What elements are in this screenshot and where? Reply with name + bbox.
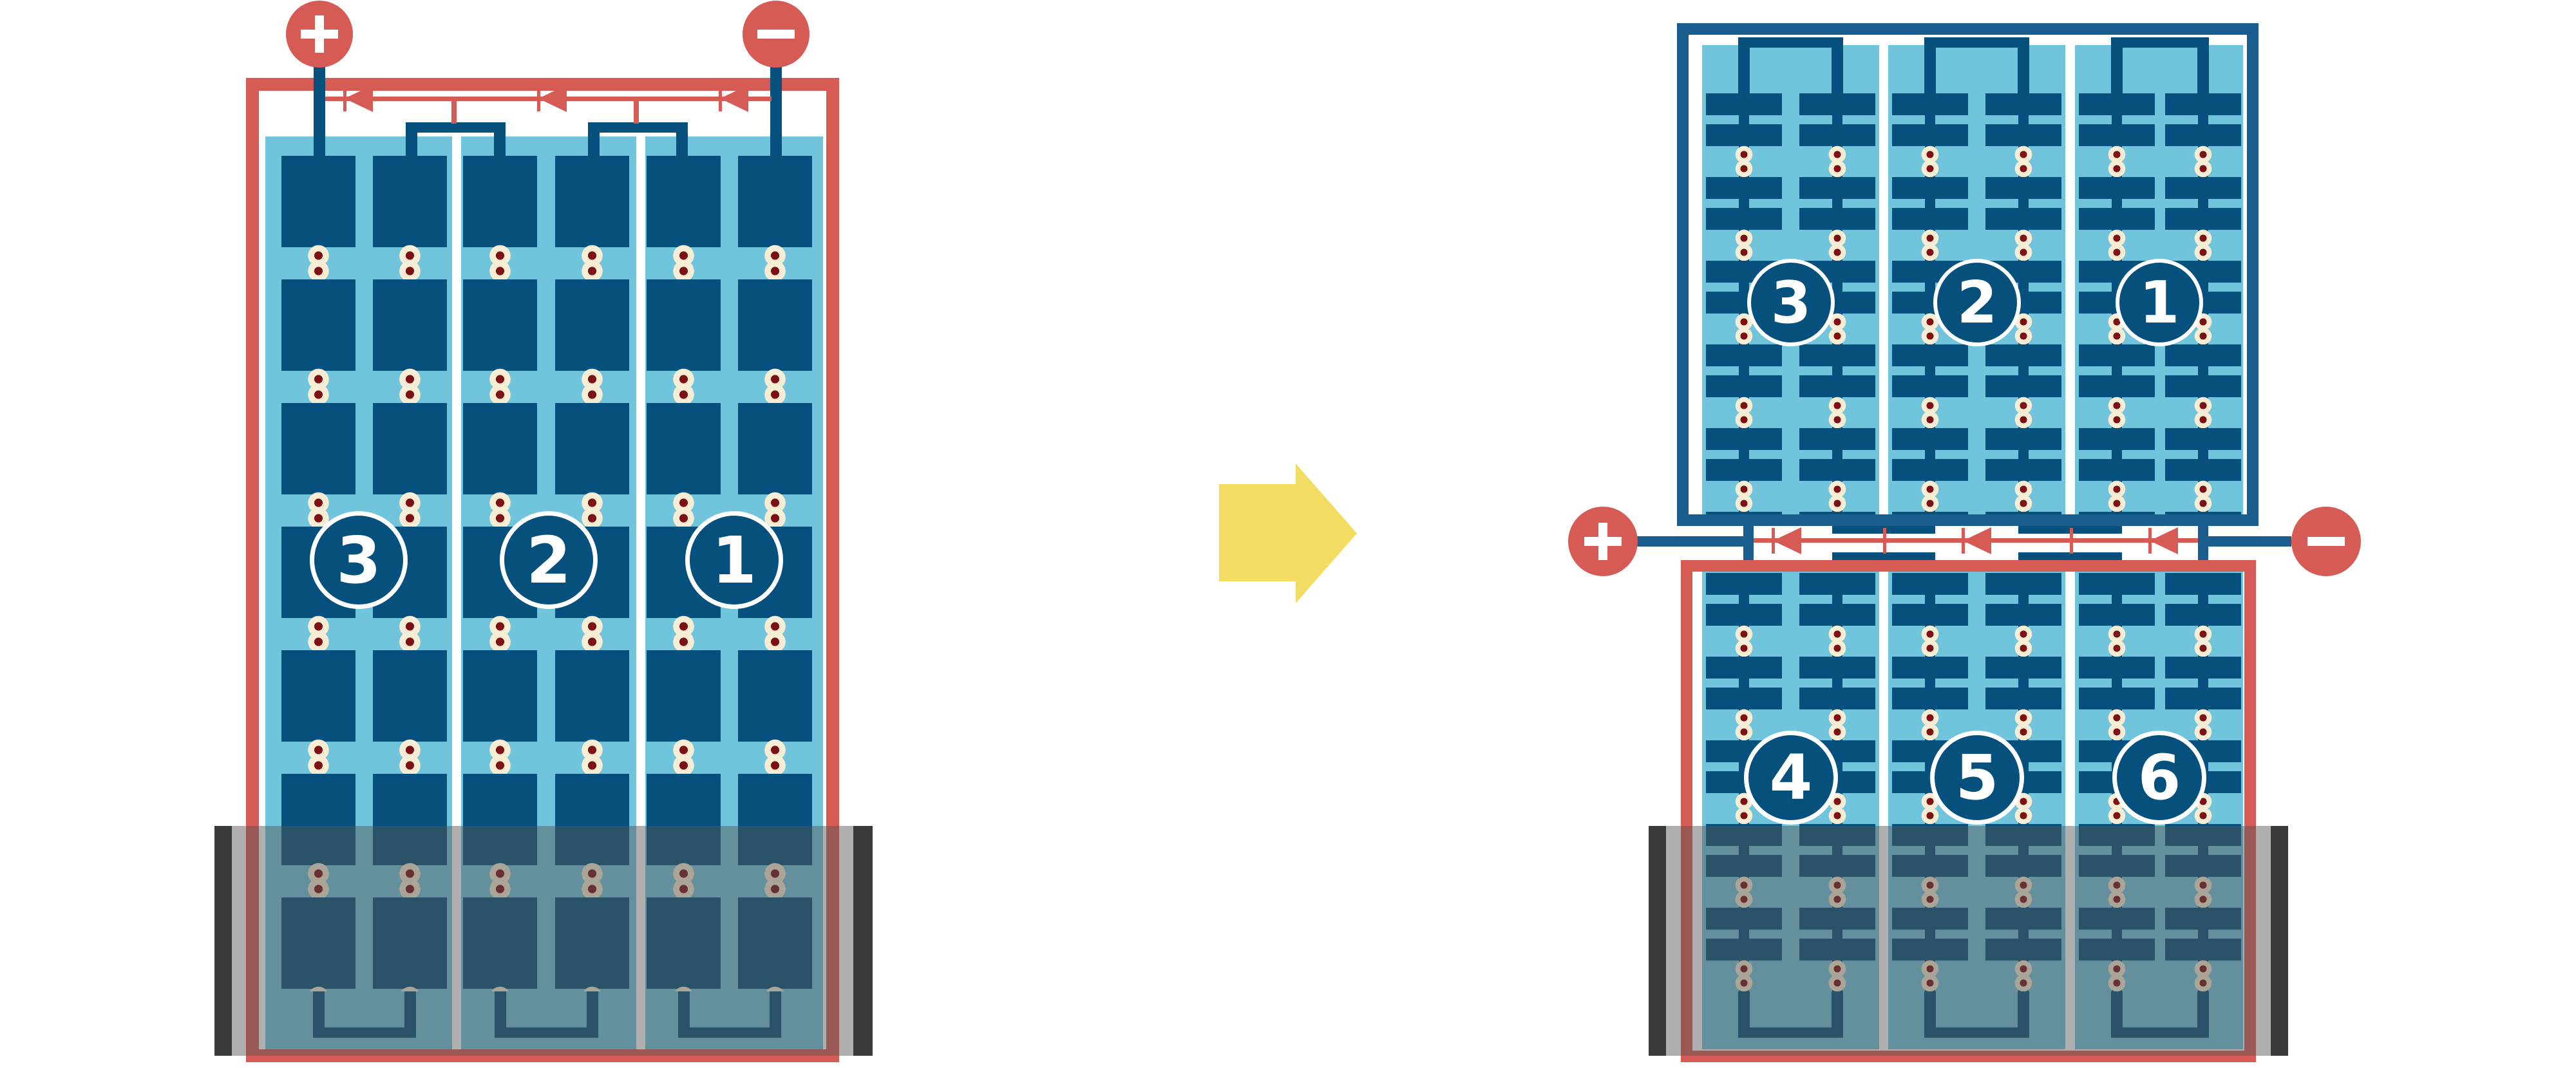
strap-sense-stub bbox=[451, 100, 457, 124]
negative-terminal-post bbox=[2208, 536, 2291, 547]
minus-icon bbox=[2307, 537, 2345, 546]
cell-number-badge: 1 bbox=[685, 511, 783, 609]
cell-number-badge: 2 bbox=[1933, 259, 2021, 346]
current-arrowhead-icon bbox=[720, 85, 748, 112]
cell-number: 1 bbox=[712, 523, 757, 598]
current-arrowhead-icon bbox=[1963, 527, 1991, 554]
current-arrowhead-icon bbox=[345, 85, 373, 112]
positive-terminal bbox=[1568, 507, 1638, 576]
cell-number-badge: 1 bbox=[2116, 259, 2203, 346]
cell-number-badge: 4 bbox=[1744, 731, 1838, 825]
current-arrowhead-icon bbox=[1773, 527, 1801, 554]
right-arrow-icon bbox=[1219, 484, 1296, 581]
corner-post bbox=[2198, 526, 2208, 561]
plus-icon bbox=[1598, 523, 1607, 560]
current-arrowhead-icon bbox=[538, 85, 567, 112]
cell-number-badge: 6 bbox=[2112, 731, 2206, 825]
current-arrowhead-icon bbox=[2150, 527, 2178, 554]
cell-number: 1 bbox=[2139, 269, 2180, 337]
cell-number-badge: 2 bbox=[500, 511, 598, 609]
cell-number: 2 bbox=[1957, 269, 1998, 337]
positive-terminal-post bbox=[1636, 536, 1743, 547]
battery-case-overlay bbox=[1666, 826, 2271, 1056]
cell-number: 2 bbox=[526, 523, 571, 598]
cell-number: 4 bbox=[1770, 742, 1813, 814]
strap-sense-stub bbox=[634, 100, 639, 124]
plus-icon bbox=[315, 15, 324, 53]
positive-terminal bbox=[286, 1, 353, 68]
cell-number-badge: 3 bbox=[1747, 259, 1835, 346]
cell-number-badge: 3 bbox=[310, 511, 408, 609]
diagram-canvas: 3 2 1 bbox=[0, 0, 2576, 1068]
current-tick bbox=[1883, 528, 1886, 554]
cell-number: 6 bbox=[2138, 742, 2181, 814]
cell-number: 3 bbox=[336, 523, 381, 598]
case-edge-bar bbox=[1649, 826, 1666, 1056]
cell-number: 3 bbox=[1771, 269, 1812, 337]
case-edge-bar bbox=[2271, 826, 2288, 1056]
cell-number-badge: 5 bbox=[1930, 731, 2024, 825]
battery-case-overlay bbox=[232, 826, 853, 1056]
corner-post bbox=[1743, 526, 1754, 561]
negative-terminal bbox=[2291, 507, 2361, 576]
case-edge-bar bbox=[214, 826, 232, 1056]
case-edge-bar bbox=[853, 826, 873, 1056]
cell-number: 5 bbox=[1956, 742, 1999, 814]
minus-icon bbox=[757, 30, 795, 39]
negative-terminal bbox=[743, 1, 810, 68]
right-arrow-icon bbox=[1296, 464, 1357, 603]
current-tick bbox=[2070, 528, 2073, 554]
